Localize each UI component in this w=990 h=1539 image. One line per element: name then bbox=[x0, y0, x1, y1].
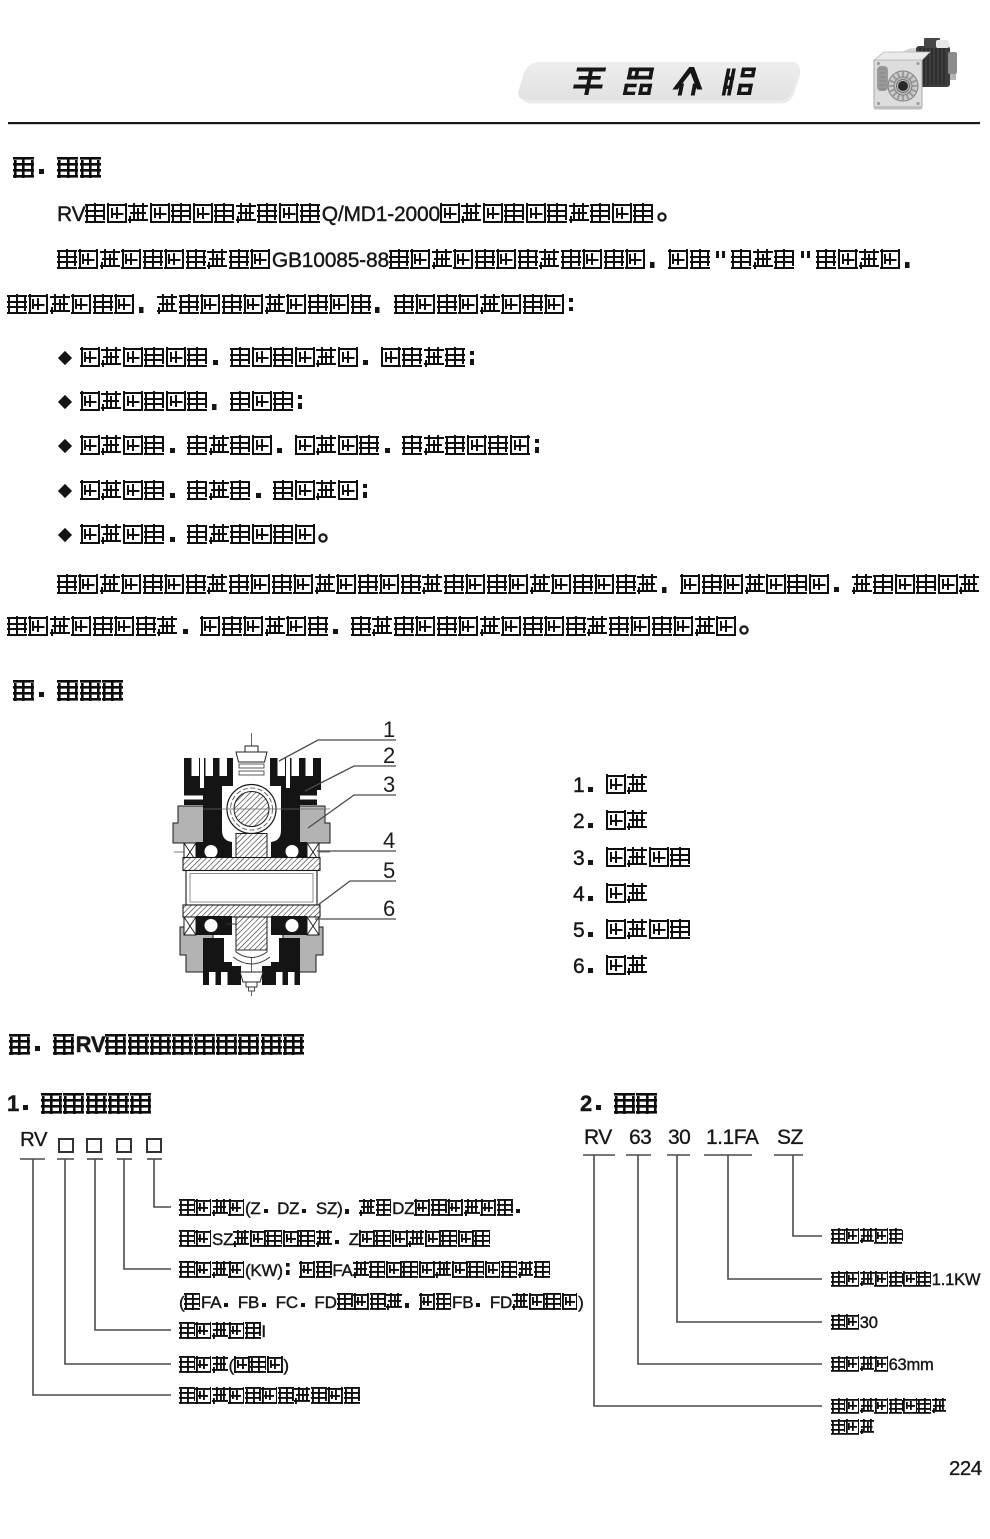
svg-text:4: 4 bbox=[383, 828, 395, 853]
svg-text:6: 6 bbox=[383, 896, 395, 921]
svg-text:5: 5 bbox=[383, 858, 395, 883]
svg-text:3: 3 bbox=[383, 772, 395, 797]
svg-text:2: 2 bbox=[383, 743, 395, 768]
svg-text:1: 1 bbox=[383, 717, 395, 742]
